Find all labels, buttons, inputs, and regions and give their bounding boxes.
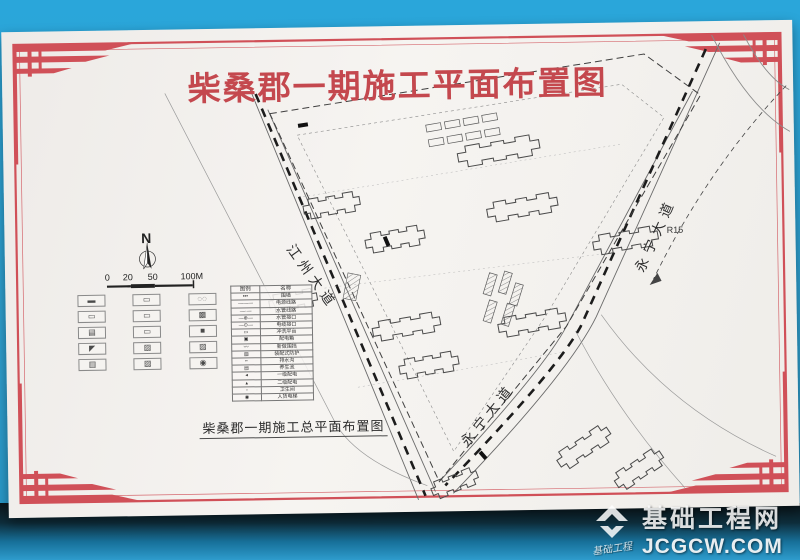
photo-background: R15 N 0 20 50 100M 江州大道 永宁大道 [0, 0, 800, 560]
radius-annotation: R15 [667, 225, 684, 235]
plan-caption: 柴桑郡一期施工总平面布置图 [199, 415, 387, 439]
rect-outline-symbol: ▭ [133, 310, 161, 322]
rect-outline-symbol: ▭ [133, 294, 161, 306]
inner-site-road [296, 84, 669, 454]
flag-symbol: ◤ [78, 343, 106, 355]
svg-text:20: 20 [123, 272, 133, 282]
rect-outline-symbol: ▭ [133, 326, 161, 338]
fence-dash-symbol: ▬ [77, 295, 105, 307]
circle-dot-symbol: ◉ [189, 357, 217, 369]
machine-symbol: ◌◌ [188, 293, 216, 305]
watermark-site-name: 基础工程网 [642, 499, 783, 535]
svg-text:50: 50 [148, 272, 158, 282]
radius-dashed-arc [651, 86, 790, 279]
watermark: 基础工程 基础工程网 JCGCW.COM [590, 498, 800, 560]
watermark-site-url: JCGCW.COM [642, 535, 783, 559]
north-label: N [141, 230, 151, 246]
striped-rect-symbol: ▤ [78, 327, 106, 339]
solid-rect-symbol: ■ [189, 325, 217, 337]
vertical-hatch-symbol: ▥ [78, 359, 106, 371]
utility-lines [302, 144, 625, 388]
watermark-logo: 基础工程 [590, 501, 638, 557]
hatched-strip [343, 273, 361, 301]
legend-row-symbol: ◉ [232, 394, 261, 402]
legend-symbol-grid: ▬▭◌◌▭▭▩▤▭■◤▨▨▥▨◉ [77, 293, 228, 371]
arrowhead-icon [649, 273, 661, 285]
shed-rects [426, 113, 501, 147]
sign-board: R15 N 0 20 50 100M 江州大道 永宁大道 [1, 20, 800, 518]
checker-rect-symbol: ▩ [188, 309, 216, 321]
board-title: 柴桑郡一期施工平面布置图 [187, 56, 608, 111]
svg-text:0: 0 [105, 273, 110, 283]
diagonal-hatch-symbol: ▨ [133, 342, 161, 354]
legend-table: 图例 名称 ▪▪▪围墙———电源线路—·—水管线路—⊕—水管接口—⊙—电缆接口▭… [230, 284, 314, 402]
scale-bar: 0 20 50 100M [105, 271, 204, 289]
legend-row-name: 人货电梯 [261, 393, 313, 401]
legend-row: ◉人货电梯 [232, 393, 313, 401]
legend-table-body: ▪▪▪围墙———电源线路—·—水管线路—⊕—水管接口—⊙—电缆接口▭冲洗平台▣配… [231, 292, 314, 401]
north-arrow-icon: N [139, 230, 156, 269]
diagonal-hatch-symbol: ▨ [189, 341, 217, 353]
diagonal-hatch-symbol: ▨ [134, 358, 162, 370]
svg-text:100M: 100M [181, 271, 204, 281]
road-label-yongning-bottom: 永宁大道 [458, 380, 518, 449]
temporary-facilities [476, 267, 526, 329]
rect-outline-symbol: ▭ [78, 311, 106, 323]
